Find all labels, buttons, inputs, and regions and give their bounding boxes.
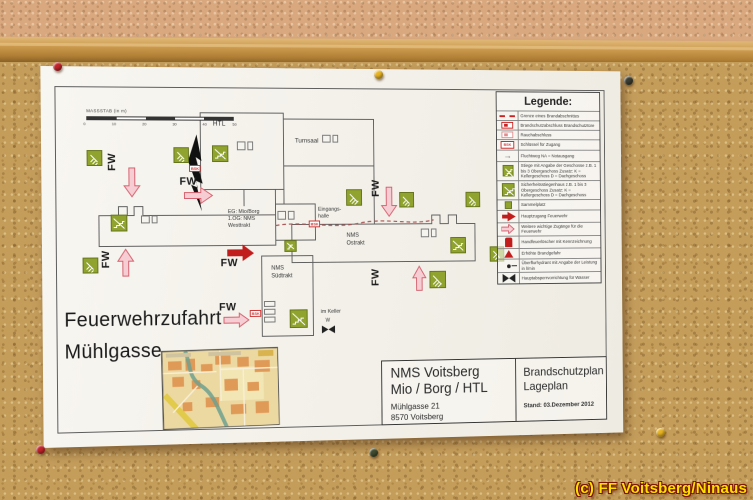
fw-label-4: FW	[221, 257, 238, 269]
legend-panel: Legende: Grenze eines Brandabschnittes B…	[496, 91, 602, 285]
legend-row: BSKSchlüssel für Zugang	[497, 139, 600, 150]
legend-row: Weitere wichtige Zugänge für die Feuerwe…	[498, 222, 601, 236]
photo-credit: (c) FF Voitsberg/Ninaus	[575, 480, 747, 497]
label-htl: HTL	[213, 121, 226, 130]
title-block: NMS Voitsberg Mio / Borg / HTL Mühlgasse…	[381, 356, 607, 425]
scale-label: MASSSTAB (in m)	[86, 108, 239, 114]
assembly-point-icon	[497, 200, 519, 210]
water-shutoff-icon	[498, 273, 520, 284]
safety-stairwell-icon	[111, 215, 128, 232]
doc-date: Stand: 03.Dezember 2012	[524, 401, 607, 410]
safety-stairwell-icon	[290, 309, 308, 328]
legend-row: →Fluchtweg NA = Notausgang	[497, 150, 600, 162]
key-box-3: BSK	[250, 310, 262, 317]
legend-row: Grenze eines Brandabschnittes	[497, 110, 600, 120]
fw-label-3: FW	[100, 250, 112, 268]
hydrant-stairs-icon	[141, 215, 158, 223]
side-access-icon	[498, 223, 520, 236]
legend-title: Legende:	[497, 92, 600, 111]
scale-bar-segments	[86, 116, 234, 121]
doc-subtype: Lageplan	[523, 378, 606, 394]
safety-stairwell-icon	[212, 145, 228, 162]
push-pin-yellow-bottom-right	[656, 428, 665, 437]
escape-route-icon: →	[497, 151, 519, 162]
assembly-point-icon	[465, 192, 480, 207]
main-access-icon	[498, 211, 520, 223]
extinguisher-icon	[498, 237, 520, 249]
label-west-wing: EG: Mio/Borg 1.OG: NMS Westtrakt	[228, 209, 260, 229]
fw-label-2: FW	[179, 176, 197, 188]
legend-row: Brandschutzabschluss Brandschutztüre	[497, 120, 600, 130]
push-pin-red-top-left	[53, 62, 62, 71]
boundary-line-icon	[497, 111, 519, 120]
legend-row: Sicherheitsstiegenhaus z.B. 1 bis 3 Ober…	[497, 180, 600, 199]
push-pin-red-bottom-left	[36, 445, 45, 454]
photo-scene: MASSSTAB (in m) 01020304050 HTL Turnsaal…	[0, 0, 753, 500]
safety-stairwell-icon	[450, 237, 466, 253]
fire-plan-paper: MASSSTAB (in m) 01020304050 HTL Turnsaal…	[40, 66, 623, 448]
label-turnsaal: Turnsaal	[295, 138, 319, 146]
hydrant-icon	[498, 260, 520, 273]
label-muehlgasse: Mühlgasse	[65, 340, 163, 365]
assembly-point-icon	[399, 192, 414, 208]
assembly-point-icon	[346, 189, 362, 206]
label-ostrakt: NMS Ostrakt	[346, 233, 364, 248]
fire-door-icon	[497, 121, 519, 130]
legend-row: Handfeuerlöscher mit Kennzeichnung	[498, 235, 601, 248]
fw-label-6: FW	[370, 179, 381, 197]
hydrant-stairs-icon	[421, 228, 437, 237]
label-eingangshalle: Eingangs- halle	[318, 207, 341, 220]
school-units: Mio / Borg / HTL	[391, 380, 516, 399]
assembly-point-icon	[173, 147, 189, 163]
legend-row: Rauchabschluss	[497, 130, 600, 140]
stairs-icon	[497, 162, 519, 180]
legend-row: Stiege mit Angabe der Geschosse z.B. 1 b…	[497, 161, 600, 180]
push-pin-black-top-right	[624, 76, 633, 85]
label-keller-w: W	[326, 318, 330, 324]
water-shutoff-symbol	[322, 325, 335, 333]
key-box-1: BSK	[189, 165, 201, 172]
street-address: Mühlgasse 21 8570 Voitsberg	[391, 399, 516, 423]
safety-stairwell-icon	[497, 181, 519, 199]
title-block-doc: Brandschutzplan Lageplan Stand: 03.Dezem…	[516, 357, 606, 421]
key-access-icon: BSK	[497, 140, 519, 150]
assembly-point-icon	[83, 257, 99, 273]
fire-danger-icon	[498, 249, 520, 259]
label-feuerwehrzufahrt: Feuerwehrzufahrt	[64, 308, 221, 333]
fw-label-7: FW	[370, 268, 381, 286]
assembly-point-icon	[87, 150, 103, 166]
smoke-door-icon	[497, 130, 519, 139]
inset-city-map	[161, 347, 280, 430]
legend-row: Überflurhydrant mit Angabe der Leistung …	[498, 258, 601, 273]
legend-row: Hauptabsperrvorrichtung für Wasser	[498, 271, 601, 284]
legend-row: Hauptzugang Feuerwehr	[498, 209, 601, 222]
push-pin-olive-bottom-middle	[369, 448, 378, 457]
safety-stairwell-icon	[284, 240, 296, 252]
legend-row: Sammelplatz	[497, 199, 600, 210]
fw-label-1: FW	[106, 153, 118, 171]
hydrant-stairs-icon	[277, 211, 294, 220]
hydrant-stairs-icon	[322, 135, 338, 143]
label-suedtrakt: NMS Südtrakt	[271, 266, 292, 281]
label-im-keller: im Keller	[321, 309, 341, 316]
push-pin-yellow-top-middle	[374, 70, 383, 79]
key-box-2: BSK	[309, 220, 321, 227]
doc-type: Brandschutzplan	[523, 364, 606, 380]
title-block-name: NMS Voitsberg Mio / Borg / HTL Mühlgasse…	[382, 359, 516, 424]
assembly-point-icon	[429, 271, 446, 289]
hydrant-stairs-icon	[264, 301, 276, 323]
hydrant-stairs-icon	[237, 141, 253, 150]
